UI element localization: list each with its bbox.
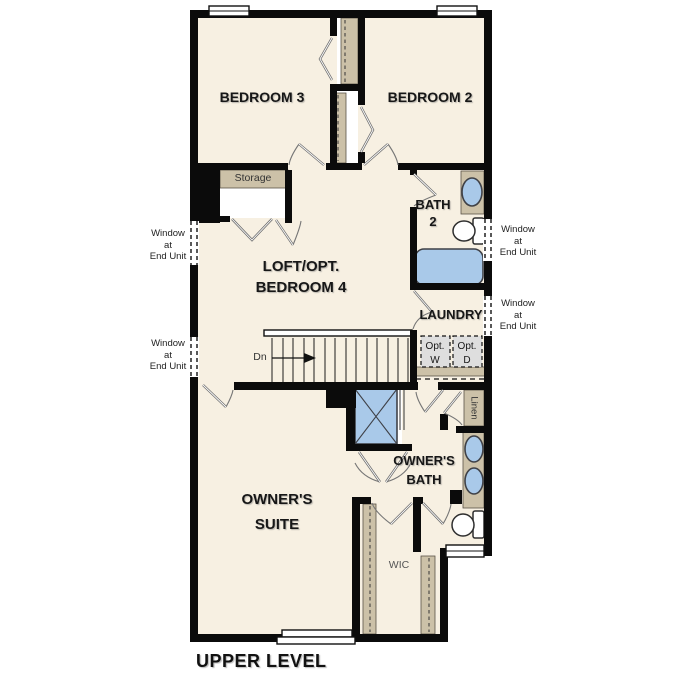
- end-unit-window-right-1: [483, 219, 493, 261]
- window-note-left-2: WindowatEnd Unit: [150, 338, 186, 373]
- room-label-loft: LOFT/OPT.BEDROOM 4: [256, 256, 347, 298]
- window-note-right-2: WindowatEnd Unit: [500, 298, 536, 333]
- dryer-label: Opt.D: [458, 340, 477, 367]
- laundry-counter: [416, 367, 485, 376]
- plan-title: UPPER LEVEL: [196, 651, 327, 672]
- room-label-wic: WIC: [389, 559, 409, 571]
- wic-rod-right: [421, 556, 435, 634]
- room-label-owners-bath: OWNER'SBATH: [393, 451, 455, 489]
- owners-toilet-bowl: [452, 514, 474, 536]
- window-note-left-1: WindowatEnd Unit: [150, 228, 186, 263]
- owners-sink-1: [465, 436, 483, 462]
- end-unit-window-left-1: [189, 221, 199, 265]
- linen-label: Linen: [469, 396, 480, 419]
- end-unit-window-left-2: [189, 337, 199, 377]
- bedroom3-closet-rod: [341, 18, 358, 84]
- bathtub: [415, 249, 483, 285]
- window-note-right-1: WindowatEnd Unit: [500, 224, 536, 259]
- washer-label: Opt.W: [426, 340, 445, 367]
- storage-label: Storage: [235, 172, 272, 184]
- end-unit-window-right-2: [483, 296, 493, 336]
- room-label-laundry: LAUNDRY: [419, 306, 482, 323]
- room-label-bedroom-3: BEDROOM 3: [220, 89, 305, 105]
- room-label-owners-suite: OWNER'SSUITE: [241, 487, 312, 537]
- bath2-sink: [462, 178, 482, 206]
- wic-rod-left: [363, 504, 376, 634]
- stairs-down-label: Dn: [253, 351, 266, 363]
- room-label-bath-2: BATH2: [415, 196, 450, 230]
- owners-sink-2: [465, 468, 483, 494]
- owners-suite-window: [282, 630, 352, 637]
- floorplan: BEDROOM 3 BEDROOM 2 LOFT/OPT.BEDROOM 4 B…: [0, 0, 687, 687]
- stair-rail: [264, 330, 412, 336]
- bath2-toilet-bowl: [453, 221, 475, 241]
- floorplan-canvas: [0, 0, 687, 687]
- room-label-bedroom-2: BEDROOM 2: [388, 89, 473, 105]
